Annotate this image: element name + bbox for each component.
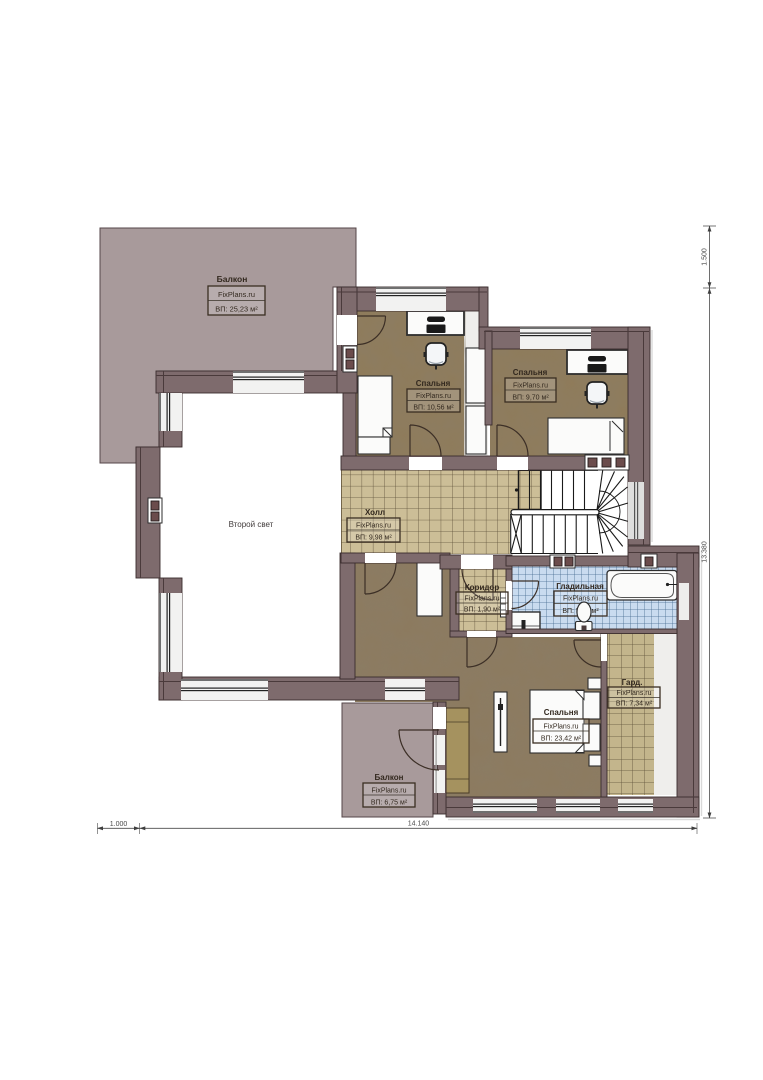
svg-text:ВП: 9,98 м²: ВП: 9,98 м² [355,535,392,542]
svg-text:Балкон: Балкон [375,773,404,782]
svg-text:FixPlans.ru: FixPlans.ru [543,724,578,731]
svg-text:ВП: 10,56 м²: ВП: 10,56 м² [413,405,454,412]
svg-text:ВП: 7,34 м²: ВП: 7,34 м² [616,701,653,708]
svg-text:FixPlans.ru: FixPlans.ru [218,290,255,299]
svg-text:ВП: 1,90 м²: ВП: 1,90 м² [464,607,501,614]
svg-text:1.500: 1.500 [702,248,709,266]
svg-text:FixPlans.ru: FixPlans.ru [371,788,406,795]
svg-text:FixPlans.ru: FixPlans.ru [563,596,598,603]
svg-text:13.380: 13.380 [702,541,709,563]
svg-text:Холл: Холл [365,508,385,517]
svg-text:Спальня: Спальня [513,368,548,377]
svg-text:FixPlans.ru: FixPlans.ru [464,596,499,603]
svg-text:Спальня: Спальня [416,379,451,388]
svg-text:FixPlans.ru: FixPlans.ru [513,383,548,390]
svg-text:1.000: 1.000 [110,821,128,828]
svg-text:Гард.: Гард. [622,678,643,687]
svg-text:FixPlans.ru: FixPlans.ru [616,690,651,697]
svg-text:ВП: 9,70 м²: ВП: 9,70 м² [512,395,549,402]
svg-text:Коридор: Коридор [465,583,500,592]
svg-text:FixPlans.ru: FixPlans.ru [356,523,391,530]
svg-text:ВП: 23,42 м²: ВП: 23,42 м² [541,736,582,743]
svg-text:Гладильная: Гладильная [556,582,604,591]
svg-text:Второй свет: Второй свет [229,520,274,529]
svg-text:FixPlans.ru: FixPlans.ru [416,393,451,400]
svg-text:14.140: 14.140 [408,821,430,828]
svg-text:ВП: 6,75 м²: ВП: 6,75 м² [371,800,408,807]
svg-text:Балкон: Балкон [217,274,248,284]
svg-text:Спальня: Спальня [544,708,579,717]
svg-text:ВП: 25,23 м²: ВП: 25,23 м² [215,305,258,314]
